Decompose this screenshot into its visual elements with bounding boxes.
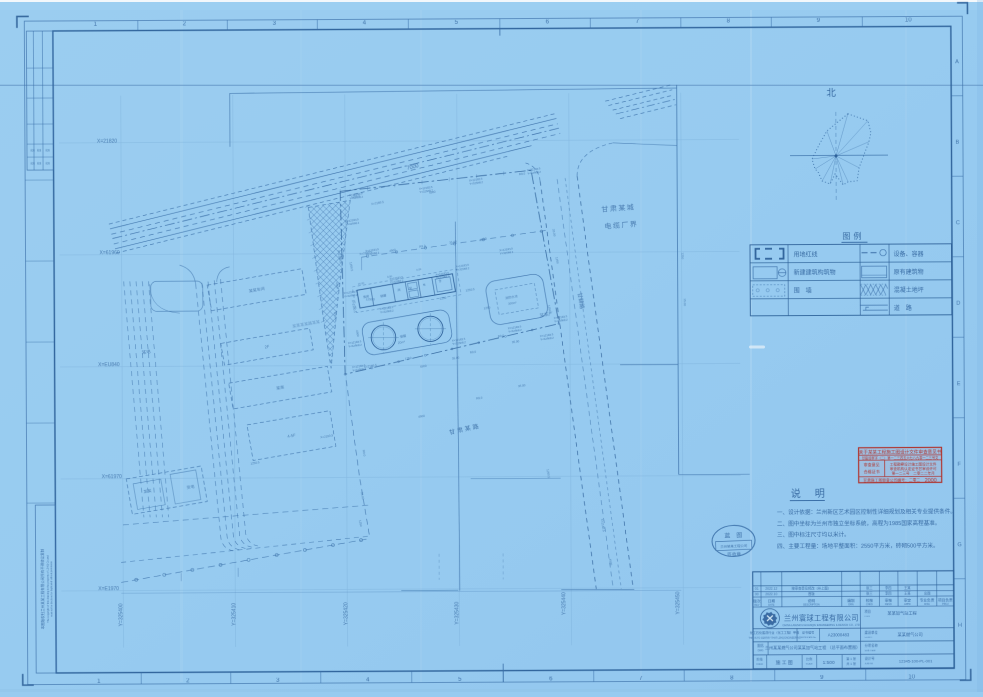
svg-text:CHINA LANZHOU HUANQIU ENGINEER: CHINA LANZHOU HUANQIU ENGINEERING & DESI…: [783, 623, 861, 627]
svg-text:STAGE: STAGE: [756, 663, 764, 666]
svg-text:D: D: [956, 301, 960, 307]
svg-text:出版: 出版: [924, 591, 931, 596]
svg-text:2000: 2000: [925, 478, 937, 484]
svg-text:01: 01: [755, 587, 759, 591]
svg-text:A: A: [955, 59, 959, 65]
svg-text:第 1 张: 第 1 张: [846, 656, 856, 661]
svg-text:用地红线: 用地红线: [794, 250, 818, 258]
svg-text:图例: 图例: [842, 231, 864, 241]
svg-text:12345-100-PL-001: 12345-100-PL-001: [899, 658, 933, 663]
svg-text:PROJ: PROJ: [942, 603, 949, 606]
svg-text:CLIENT: CLIENT: [865, 637, 874, 639]
svg-text:阶段: 阶段: [757, 656, 763, 661]
svg-text:版次: 版次: [753, 598, 761, 603]
svg-text:APPD: APPD: [904, 603, 911, 606]
svg-text:混凝土地坪: 混凝土地坪: [894, 286, 924, 294]
svg-text:C: C: [956, 220, 960, 226]
svg-text:分项名称: 分项名称: [865, 643, 879, 648]
svg-text:合格证书: 合格证书: [864, 468, 880, 474]
svg-text:共 1 张: 共 1 张: [846, 661, 856, 666]
svg-text:The copyright of this drawing: The copyright of this drawing is the pro…: [47, 555, 50, 623]
svg-text:项目负责: 项目负责: [938, 597, 953, 602]
svg-text:甘建设审字〔二〕第一二三四五六七八九零一二三号文: 甘建设审字〔二〕第一二三四五六七八九零一二三号文: [862, 455, 939, 460]
svg-text:REVD: REVD: [885, 603, 892, 606]
svg-text:兰州某某燃气公司某某加气站工程 （总平面布置图）: 兰州某某燃气公司某某加气站工程 （总平面布置图）: [765, 644, 860, 650]
svg-text:张三: 张三: [866, 591, 873, 596]
svg-text:CERTIFICATE No.: CERTIFICATE No.: [800, 636, 817, 639]
svg-text:甘肃施工图审查公司编号：二零二: 甘肃施工图审查公司编号：二零二: [863, 477, 920, 482]
svg-text:储罐: 储罐: [380, 292, 387, 298]
svg-text:X=21820: X=21820: [97, 139, 117, 145]
svg-text:DISC: DISC: [924, 603, 930, 606]
svg-text:X=EU840: X=EU840: [98, 362, 120, 368]
svg-text:第一二三号 二零二二年月: 第一二三号 二零二二年月: [892, 470, 935, 475]
svg-text:李四: 李四: [885, 591, 892, 596]
svg-text:项目: 项目: [864, 610, 871, 614]
svg-text:10: 10: [905, 17, 912, 23]
svg-text:首版: 首版: [808, 591, 815, 596]
svg-text:说 明: 说 明: [791, 487, 827, 500]
svg-text:2022.10: 2022.10: [765, 592, 777, 596]
svg-text:B: B: [956, 140, 960, 146]
svg-text:张三: 张三: [866, 585, 873, 590]
svg-text:说明: 说明: [808, 598, 816, 603]
svg-text:北: 北: [826, 88, 837, 99]
svg-text:DATE: DATE: [768, 604, 775, 607]
svg-text:按审查意见修改（补上图）: 按审查意见修改（补上图）: [791, 585, 831, 590]
svg-text:1:500: 1:500: [823, 660, 835, 666]
svg-text:道 路: 道 路: [894, 304, 912, 312]
svg-text:Y=325430: Y=325430: [454, 602, 460, 625]
svg-text:00: 00: [755, 593, 759, 597]
svg-text:李四: 李四: [885, 585, 892, 590]
svg-text:REV: REV: [754, 604, 759, 607]
svg-text:JOB No.: JOB No.: [865, 663, 874, 665]
svg-text:G: G: [957, 542, 961, 548]
svg-text:专业负责: 专业负责: [920, 597, 935, 602]
svg-text:Y=325400: Y=325400: [118, 603, 124, 626]
svg-text:Y=325410: Y=325410: [231, 603, 237, 626]
svg-text:审查意见: 审查意见: [864, 461, 880, 467]
svg-text:10: 10: [908, 674, 915, 680]
svg-text:设计号: 设计号: [865, 656, 876, 661]
svg-text:建设单位: 建设单位: [865, 630, 879, 635]
svg-text:兰州寰球工程有限公司: 兰州寰球工程有限公司: [784, 613, 859, 622]
svg-text:日期: 日期: [768, 598, 776, 603]
svg-text:新建建筑构筑物: 新建建筑构筑物: [794, 268, 836, 276]
svg-text:X=E1970: X=E1970: [98, 586, 119, 592]
svg-text:CHKD: CHKD: [866, 603, 873, 606]
svg-text:化工石化医药行业（化工工程）甲级: 化工石化医药行业（化工工程）甲级: [750, 630, 800, 635]
svg-text:原有建筑物: 原有建筑物: [894, 268, 924, 276]
svg-text:Y=325420: Y=325420: [343, 602, 349, 625]
svg-text:围 墙: 围 墙: [794, 287, 812, 295]
svg-text:THIS IS TO CERTIFY THAT LZHQ E: THIS IS TO CERTIFY THAT LZHQ ENGINEERING: [749, 637, 801, 640]
svg-text:审定: 审定: [904, 597, 912, 602]
svg-text:SCALE: SCALE: [806, 663, 813, 666]
svg-text:DRN: DRN: [848, 603, 853, 606]
svg-text:证书编号: 证书编号: [802, 630, 814, 635]
svg-text:本图版权归兰州某某工程有限公司所有不得转让复制: 本图版权归兰州某某工程有限公司所有不得转让复制: [40, 548, 45, 629]
svg-text:Y=325440: Y=325440: [561, 592, 567, 615]
svg-text:审核: 审核: [885, 597, 893, 602]
svg-text:35.00: 35.00: [683, 298, 687, 306]
svg-text:SUB ITEM: SUB ITEM: [865, 650, 876, 652]
svg-text:图名: 图名: [757, 643, 764, 648]
svg-text:E: E: [957, 381, 961, 387]
svg-text:2022.12: 2022.12: [765, 587, 777, 591]
svg-text:王某: 王某: [904, 591, 911, 596]
svg-text:X=61970: X=61970: [102, 474, 122, 480]
svg-text:A23000483: A23000483: [828, 632, 850, 637]
svg-text:设备、容器: 设备、容器: [894, 250, 924, 258]
svg-text:DWG: DWG: [758, 649, 764, 652]
svg-text:DESCRIPTION: DESCRIPTION: [803, 604, 820, 607]
svg-text:王某: 王某: [904, 585, 911, 590]
svg-text:审查机构认定证书甘审设许可: 审查机构认定证书甘审设许可: [890, 466, 937, 471]
svg-text:must not be disclosed or dupli: must not be disclosed or duplicated with…: [50, 560, 53, 616]
svg-text:1250.5: 1250.5: [366, 297, 376, 301]
svg-text:工程勘察设计施工图设计文件: 工程勘察设计施工图设计文件: [890, 461, 937, 466]
svg-text:H: H: [958, 623, 962, 629]
svg-text:比例: 比例: [806, 656, 812, 661]
svg-text:校核: 校核: [866, 598, 874, 603]
svg-text:1250: 1250: [681, 252, 685, 259]
svg-text:编制: 编制: [847, 598, 855, 603]
svg-text:ITEM: ITEM: [864, 616, 870, 618]
svg-text:Y=325450: Y=325450: [675, 591, 681, 614]
